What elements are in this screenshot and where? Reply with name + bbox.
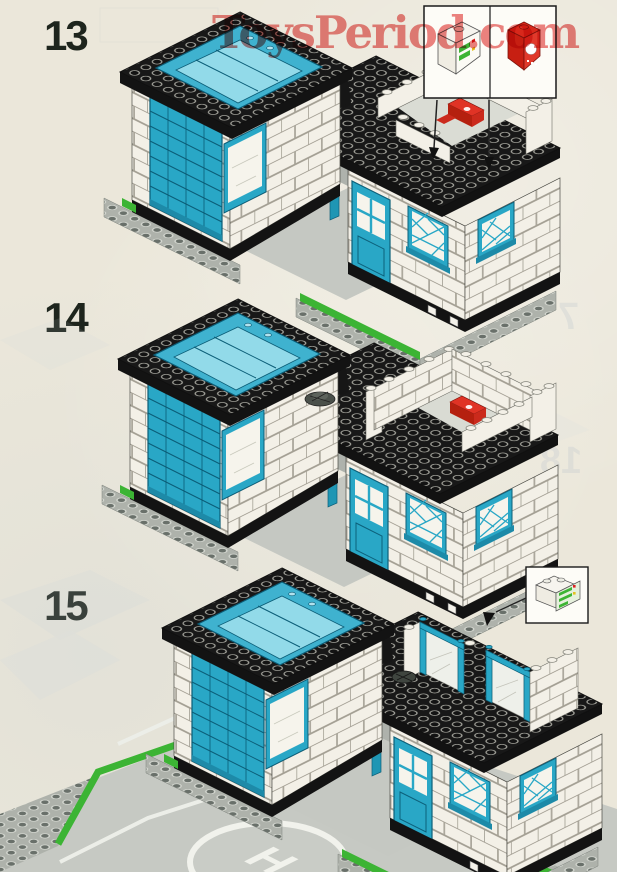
callout-box (424, 6, 556, 98)
instruction-illustrations: H (0, 0, 617, 872)
instruction-page: H (0, 0, 617, 872)
step-13-illustration (104, 6, 560, 378)
callout-box (526, 567, 588, 623)
roof-grille (392, 671, 416, 683)
roof-grille (305, 392, 335, 406)
